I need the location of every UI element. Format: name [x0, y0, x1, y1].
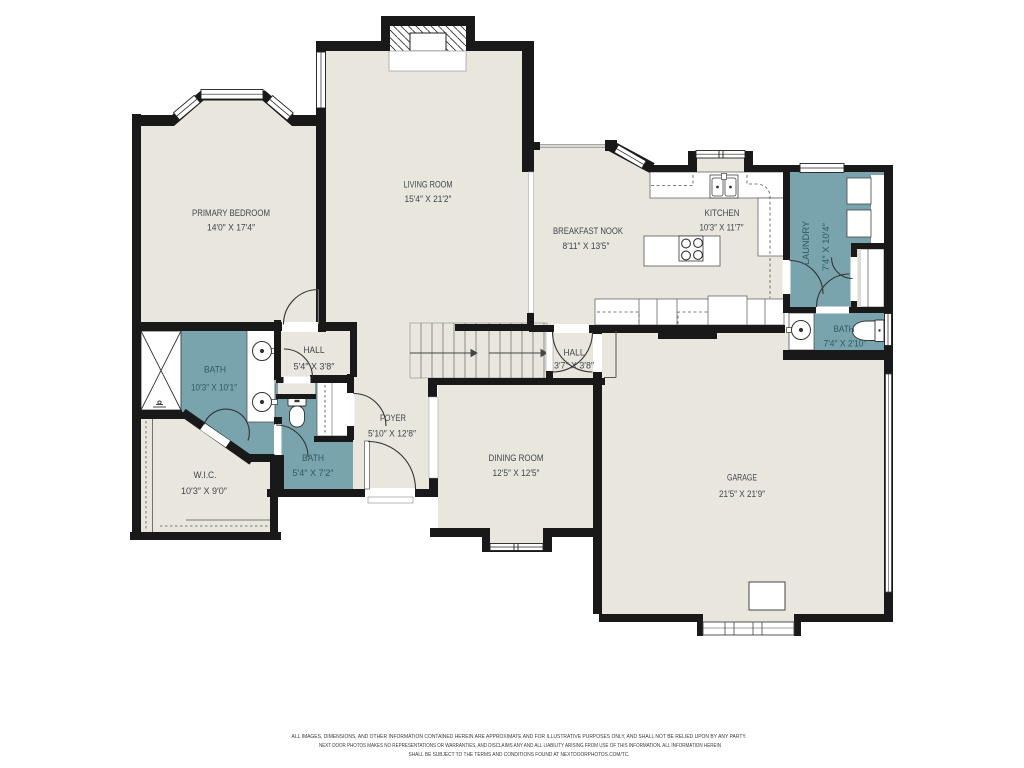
svg-text:5′4″ X 3′8″: 5′4″ X 3′8″ [294, 362, 336, 372]
svg-text:10′3″ X 10′1″: 10′3″ X 10′1″ [191, 383, 238, 393]
svg-text:KITCHEN: KITCHEN [705, 208, 740, 219]
svg-text:14′0″ X 17′4″: 14′0″ X 17′4″ [207, 223, 256, 233]
svg-text:FOYER: FOYER [380, 413, 406, 424]
svg-text:LIVING ROOM: LIVING ROOM [404, 180, 453, 191]
svg-text:LAUNDRY: LAUNDRY [801, 220, 812, 265]
svg-text:BATH: BATH [834, 324, 855, 335]
svg-text:10′3″ X 11′7″: 10′3″ X 11′7″ [700, 223, 745, 233]
svg-text:8′11″ X 13′5″: 8′11″ X 13′5″ [563, 241, 611, 251]
svg-text:7′4″ X 2′10″: 7′4″ X 2′10″ [824, 339, 868, 349]
svg-text:BATH: BATH [302, 453, 324, 464]
svg-text:BATH: BATH [204, 365, 226, 376]
svg-text:W.I.C.: W.I.C. [194, 470, 217, 481]
svg-text:ALL IMAGES, DIMENSIONS, AND OT: ALL IMAGES, DIMENSIONS, AND OTHER INFORM… [292, 734, 747, 740]
svg-text:5′4″ X 7′2″: 5′4″ X 7′2″ [293, 468, 335, 478]
svg-text:21′5″ X 21′9″: 21′5″ X 21′9″ [719, 489, 766, 499]
svg-text:HALL: HALL [564, 348, 586, 359]
svg-text:15′4″ X 21′2″: 15′4″ X 21′2″ [405, 194, 453, 204]
svg-text:12′5″ X 12′5″: 12′5″ X 12′5″ [493, 468, 541, 478]
svg-text:HALL: HALL [304, 345, 326, 356]
svg-text:SHALL BE SUBJECT TO THE TERMS: SHALL BE SUBJECT TO THE TERMS AND CONDIT… [409, 752, 630, 758]
svg-text:7′4″ X 10′4″: 7′4″ X 10′4″ [821, 222, 831, 271]
svg-text:NEXT DOOR PHOTOS MAKES NO REPR: NEXT DOOR PHOTOS MAKES NO REPRESENTATION… [319, 743, 721, 749]
svg-text:DINING ROOM: DINING ROOM [489, 453, 544, 464]
svg-text:5′10″ X 12′8″: 5′10″ X 12′8″ [368, 429, 417, 439]
svg-text:GARAGE: GARAGE [727, 473, 757, 484]
svg-text:3′7″ X 3′8″: 3′7″ X 3′8″ [554, 361, 595, 371]
svg-text:10′3″ X 9′0″: 10′3″ X 9′0″ [181, 486, 228, 496]
svg-text:BREAKFAST NOOK: BREAKFAST NOOK [553, 226, 623, 237]
svg-text:PRIMARY BEDROOM: PRIMARY BEDROOM [192, 208, 270, 219]
